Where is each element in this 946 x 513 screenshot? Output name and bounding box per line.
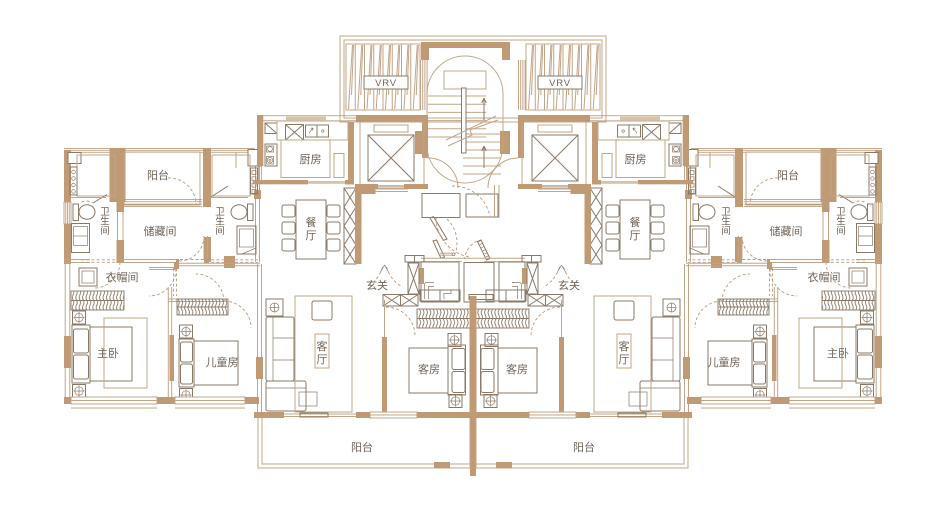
svg-text:客房: 客房 [506,362,528,376]
svg-text:阳台: 阳台 [777,168,799,182]
svg-text:客厅: 客厅 [619,339,630,366]
svg-text:储藏间: 储藏间 [144,224,177,238]
svg-text:阳台: 阳台 [147,168,169,182]
svg-text:阳台: 阳台 [573,440,595,454]
svg-text:客厅: 客厅 [317,339,328,366]
svg-text:餐厅: 餐厅 [306,215,317,242]
svg-text:儿童房: 儿童房 [708,355,741,369]
svg-text:客房: 客房 [418,362,440,376]
svg-text:阳台: 阳台 [351,440,373,454]
svg-text:卫生间: 卫生间 [836,207,846,237]
svg-text:主卧: 主卧 [827,347,849,360]
svg-text:卫生间: 卫生间 [721,207,731,237]
svg-text:卫生间: 卫生间 [100,207,110,237]
svg-text:儿童房: 儿童房 [206,355,239,369]
svg-text:VRV: VRV [375,78,397,89]
svg-text:主卧: 主卧 [97,347,119,360]
svg-text:厨房: 厨房 [300,153,322,166]
svg-text:厨房: 厨房 [625,153,647,166]
svg-text:卫生间: 卫生间 [215,207,225,237]
svg-text:VRV: VRV [549,78,571,89]
svg-text:储藏间: 储藏间 [770,224,803,238]
svg-text:餐厅: 餐厅 [630,215,641,242]
